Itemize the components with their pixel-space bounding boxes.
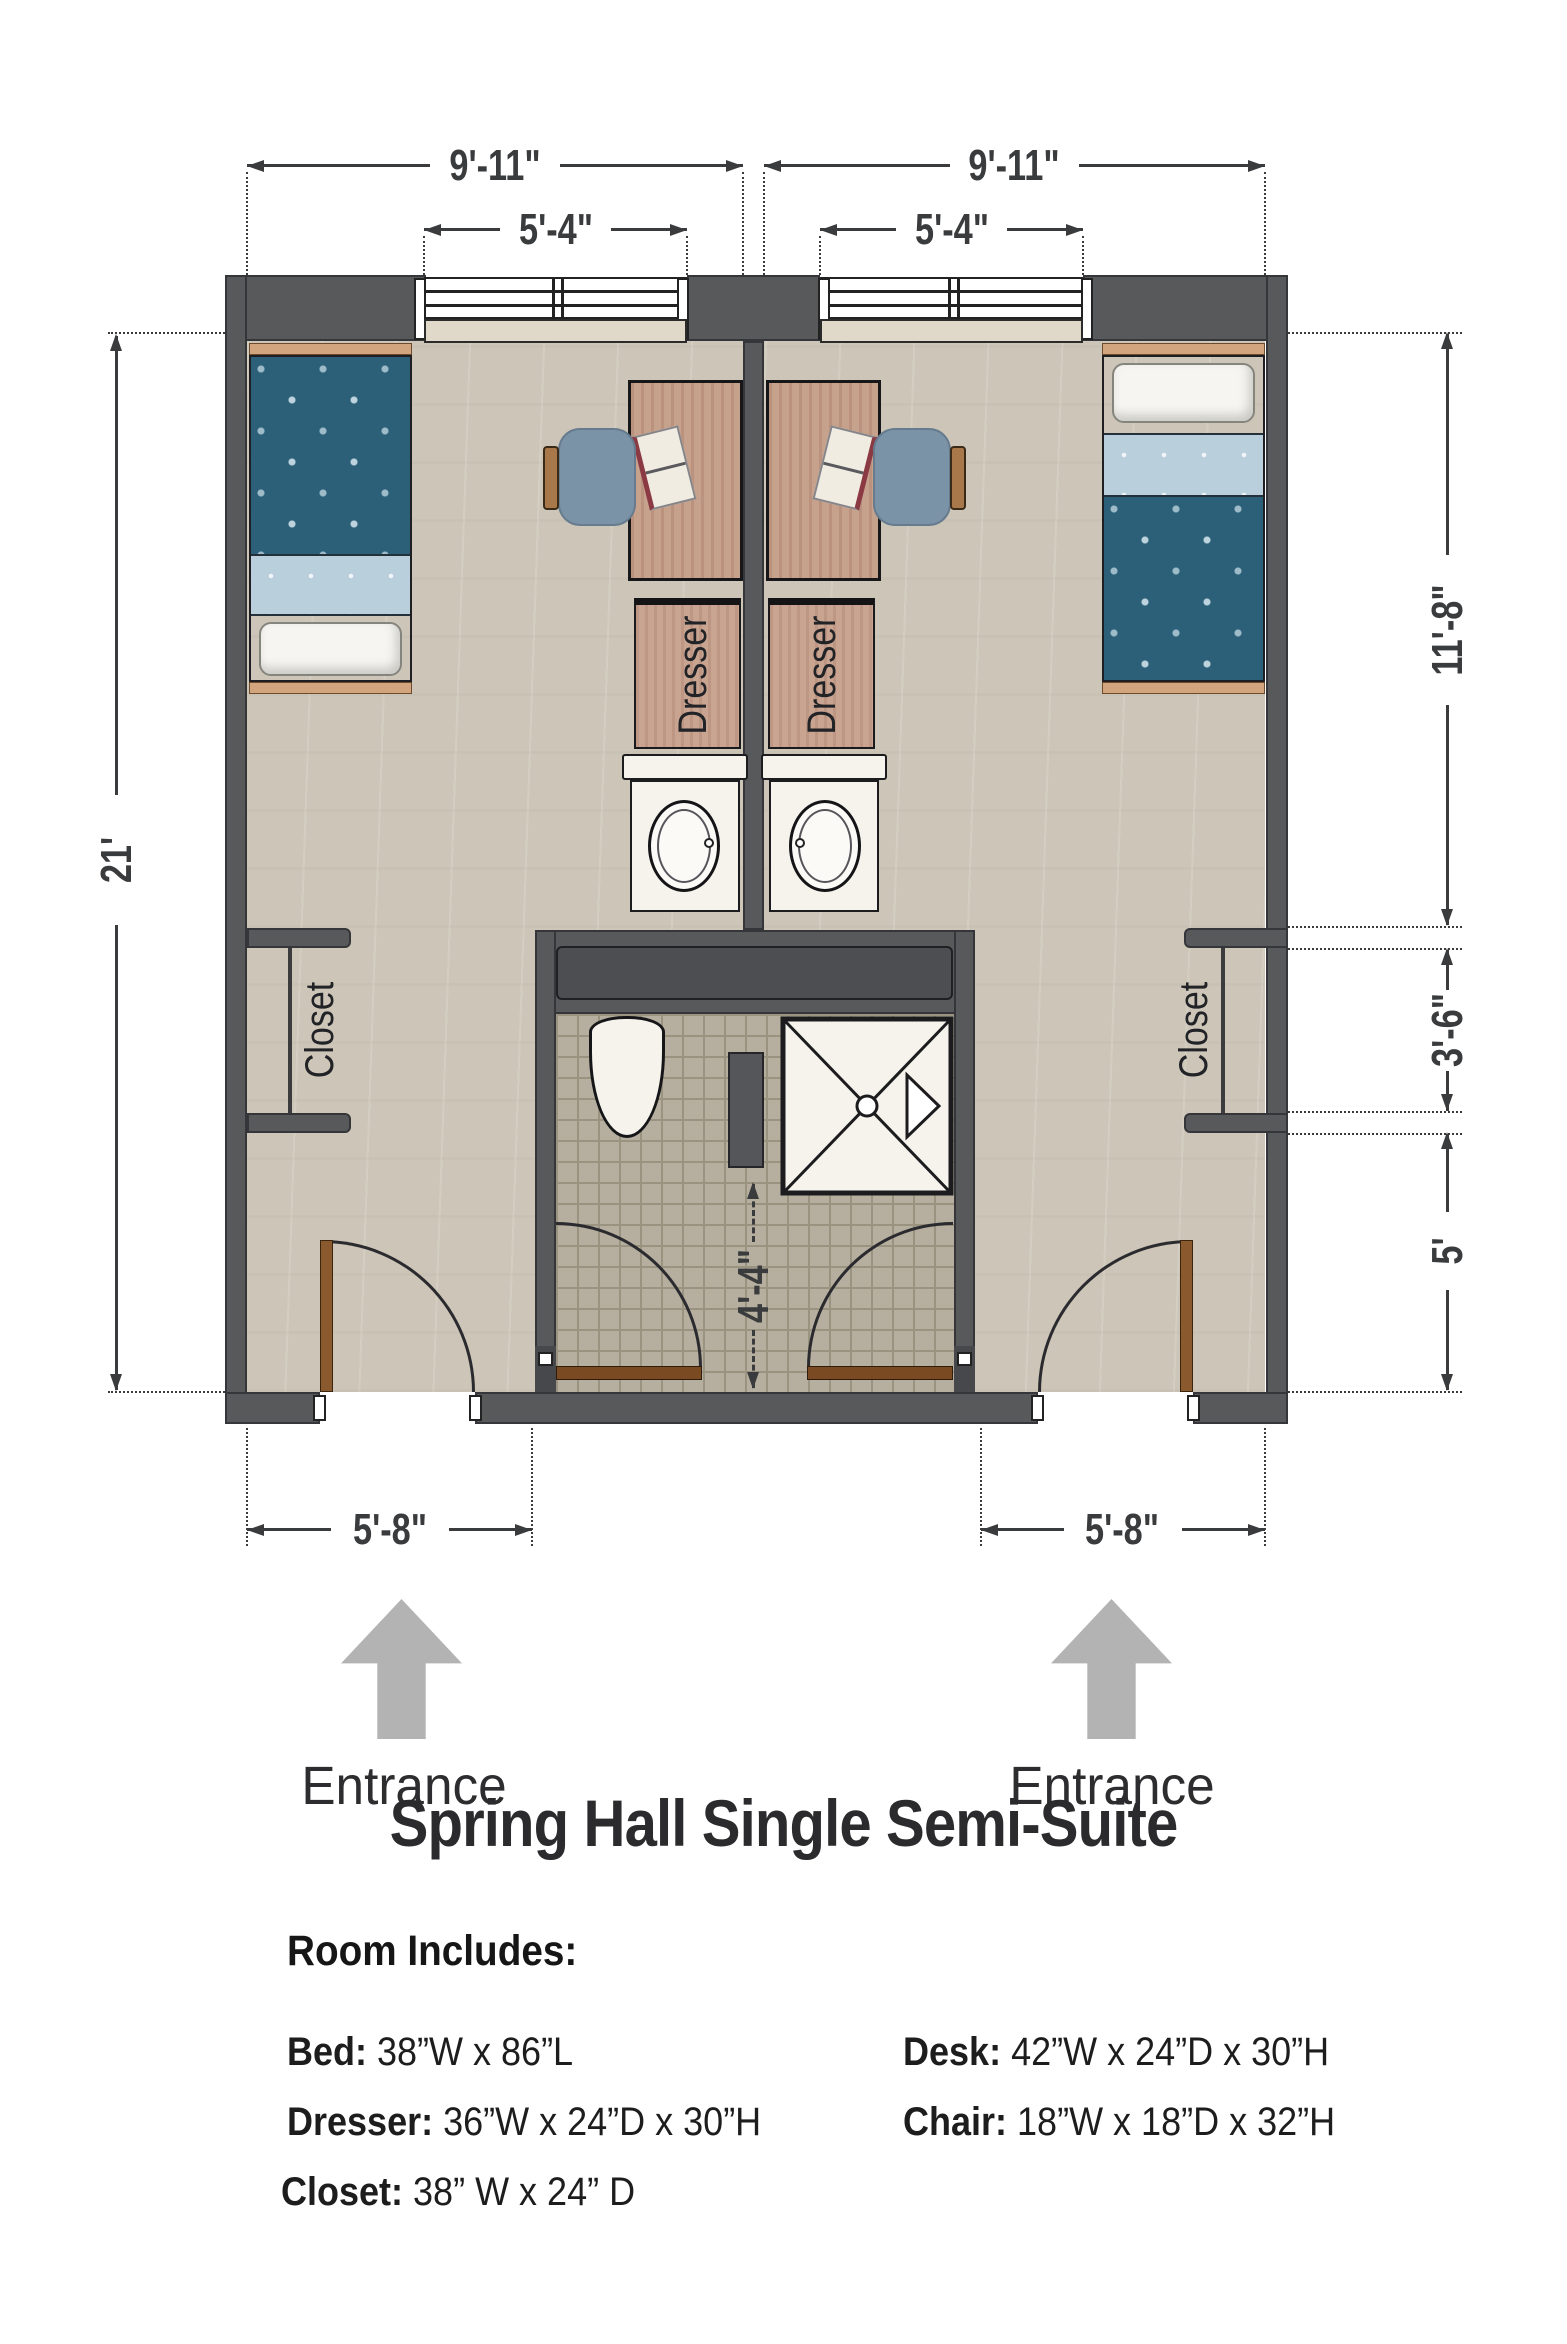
bed-right [1102, 355, 1265, 682]
window-left [424, 277, 687, 319]
bed-right-headboard [1102, 343, 1265, 355]
dim-room-left-width: 9'-11" [449, 144, 540, 188]
extension-line [246, 172, 248, 275]
dim-window-left: 5'-4" [519, 208, 593, 252]
room-includes-item-chair: Chair: 18”W x 18”D x 32”H [903, 2102, 1335, 2142]
extension-line [1288, 332, 1462, 334]
top-wall-right-block [1083, 275, 1288, 341]
item-value: 38”W x 86”L [377, 2030, 573, 2074]
dim-right-lower: 5' [1426, 1237, 1470, 1264]
room-includes-item-desk: Desk: 42”W x 24”D x 30”H [903, 2032, 1329, 2072]
extension-line [1264, 172, 1266, 275]
entrance-arrow-right-icon [1051, 1599, 1172, 1739]
chair-left-seat [558, 428, 636, 526]
item-value: 18”W x 18”D x 32”H [1017, 2100, 1335, 2144]
bed-left-footboard [249, 682, 412, 694]
dim-line [764, 164, 950, 167]
window-rail [822, 290, 1081, 293]
bottom-wall-center [475, 1392, 1038, 1424]
door-jamb [1187, 1395, 1200, 1421]
page-title: Spring Hall Single Semi-Suite [94, 1790, 1473, 1856]
extension-line [1288, 948, 1462, 950]
window-rail [822, 304, 1081, 307]
dim-arrow [747, 1372, 759, 1389]
dim-arrow [1248, 1524, 1265, 1536]
extension-line [742, 172, 744, 275]
window-mullion [948, 279, 951, 317]
dim-arrow [110, 334, 122, 351]
window-sill-left [424, 319, 687, 343]
dim-arrow [764, 160, 781, 172]
bottom-wall-left [225, 1392, 320, 1424]
book-spine-line [823, 462, 864, 475]
left-wall [225, 275, 247, 1424]
closet-left-wall-top [247, 928, 351, 948]
bed-left-sheet-fold [251, 554, 410, 616]
dim-arrow [1441, 909, 1453, 926]
dim-line [1446, 334, 1449, 555]
room-includes-item-bed: Bed: 38”W x 86”L [287, 2032, 573, 2072]
bathroom-jamb-cap [538, 1352, 553, 1366]
shower [780, 1016, 954, 1196]
shower-drain-icon [857, 1096, 877, 1116]
item-value: 42”W x 24”D x 30”H [1011, 2030, 1329, 2074]
bed-right-pillow [1112, 363, 1255, 423]
item-label: Dresser: [287, 2100, 433, 2144]
chair-right-back [950, 446, 966, 510]
dim-arrow [247, 1524, 264, 1536]
window-mullion [552, 279, 555, 317]
sink-left-counter [622, 754, 748, 780]
extension-line [108, 332, 225, 334]
dim-arrow [1441, 1132, 1453, 1149]
closet-right-label: Closet [1174, 982, 1214, 1078]
dim-window-right: 5'-4" [915, 208, 989, 252]
entrance-door-right [1180, 1240, 1193, 1392]
dim-arrow [1248, 160, 1265, 172]
window-sill-right [820, 319, 1083, 343]
bathroom-jamb-cap [957, 1352, 972, 1366]
bed-right-footboard [1102, 682, 1265, 694]
door-jamb [1031, 1395, 1044, 1421]
entrance-arrow-left-icon [341, 1599, 462, 1739]
dim-arrow [726, 160, 743, 172]
chair-right-seat [873, 428, 951, 526]
dim-line [1079, 164, 1265, 167]
center-partition-wall [743, 341, 764, 930]
dim-line [560, 164, 743, 167]
dim-line [1446, 705, 1449, 925]
item-label: Bed: [287, 2030, 367, 2074]
dim-entry-right: 5'-8" [1085, 1508, 1159, 1552]
item-label: Desk: [903, 2030, 1001, 2074]
top-wall-center-block [687, 275, 820, 341]
window-rail [426, 290, 685, 293]
room-includes-heading: Room Includes: [287, 1930, 577, 1973]
dim-line [115, 925, 118, 1390]
dim-right-middle: 3'-6" [1426, 993, 1470, 1067]
dim-bath-corridor: 4'-4" [732, 1249, 776, 1323]
sink-basin-inner [798, 809, 852, 883]
item-value: 36”W x 24”D x 30”H [443, 2100, 761, 2144]
closet-left-rod [288, 948, 292, 1113]
closet-left-label: Closet [300, 982, 340, 1078]
extension-line [1288, 1111, 1462, 1113]
item-value: 38” W x 24” D [413, 2170, 635, 2214]
closet-right-rod [1221, 948, 1225, 1113]
bathroom-wall-right [954, 930, 975, 1392]
dim-arrow [981, 1524, 998, 1536]
chair-left-back [543, 446, 559, 510]
door-jamb [469, 1395, 482, 1421]
item-label: Closet: [281, 2170, 403, 2214]
top-wall-left-block [225, 275, 426, 341]
window-mullion [957, 279, 960, 317]
bed-left-headboard [249, 343, 412, 355]
dim-arrow [820, 224, 837, 236]
dim-arrow [110, 1374, 122, 1391]
closet-left-wall-bottom [247, 1113, 351, 1133]
dim-arrow [1066, 224, 1083, 236]
floor-plan-page: Dresser Dresser Closet Closet [0, 0, 1567, 2344]
closet-right-wall-bottom [1184, 1113, 1288, 1133]
extension-line [686, 236, 688, 275]
room-includes-item-closet: Closet: 38” W x 24” D [281, 2172, 635, 2212]
extension-line [423, 236, 425, 275]
bed-right-blanket [1104, 497, 1263, 680]
sink-left-faucet [704, 838, 714, 848]
window-right [820, 277, 1083, 319]
extension-line [1082, 236, 1084, 275]
dresser-right-label: Dresser [802, 615, 842, 734]
extension-line [819, 236, 821, 275]
entrance-door-left [320, 1240, 333, 1392]
sink-right-counter [761, 754, 887, 780]
window-mullion [561, 279, 564, 317]
dim-entry-left: 5'-8" [353, 1508, 427, 1552]
dresser-left-label: Dresser [673, 615, 713, 734]
room-includes-item-dresser: Dresser: 36”W x 24”D x 30”H [287, 2102, 761, 2142]
bathroom-counter-panel [556, 946, 953, 1000]
dim-arrow [670, 224, 687, 236]
book-spine-line [645, 462, 686, 475]
right-wall [1266, 275, 1288, 1424]
dim-right-upper: 11'-8" [1426, 584, 1470, 675]
dim-arrow [1441, 332, 1453, 349]
dim-arrow [1441, 1094, 1453, 1111]
window-rail [426, 304, 685, 307]
item-label: Chair: [903, 2100, 1007, 2144]
closet-right-wall-top [1184, 928, 1288, 948]
dim-arrow [747, 1182, 759, 1199]
dim-arrow [424, 224, 441, 236]
dim-arrow [247, 160, 264, 172]
extension-line [1288, 1391, 1462, 1393]
extension-line [763, 172, 765, 275]
sink-right-faucet [795, 838, 805, 848]
bed-left-pillow [259, 622, 402, 676]
bottom-wall-right [1193, 1392, 1288, 1424]
bathroom-wall-left [535, 930, 556, 1392]
extension-line [1288, 926, 1462, 928]
bed-right-sheet-fold [1104, 433, 1263, 497]
extension-line [1288, 1133, 1462, 1135]
dim-line [115, 336, 118, 795]
dim-line [247, 164, 430, 167]
bathroom-door-left [556, 1366, 702, 1380]
bed-left-blanket [251, 357, 410, 554]
bathroom-door-right [807, 1366, 953, 1380]
dim-arrow [1441, 948, 1453, 965]
extension-line [108, 1391, 225, 1393]
bed-left [249, 355, 412, 682]
dim-arrow [515, 1524, 532, 1536]
dim-arrow [1441, 1374, 1453, 1391]
dim-room-right-width: 9'-11" [968, 144, 1059, 188]
sink-basin-inner [657, 809, 711, 883]
bathroom-privacy-partition [728, 1052, 764, 1168]
door-jamb [313, 1395, 326, 1421]
dim-overall-height: 21' [95, 837, 139, 883]
